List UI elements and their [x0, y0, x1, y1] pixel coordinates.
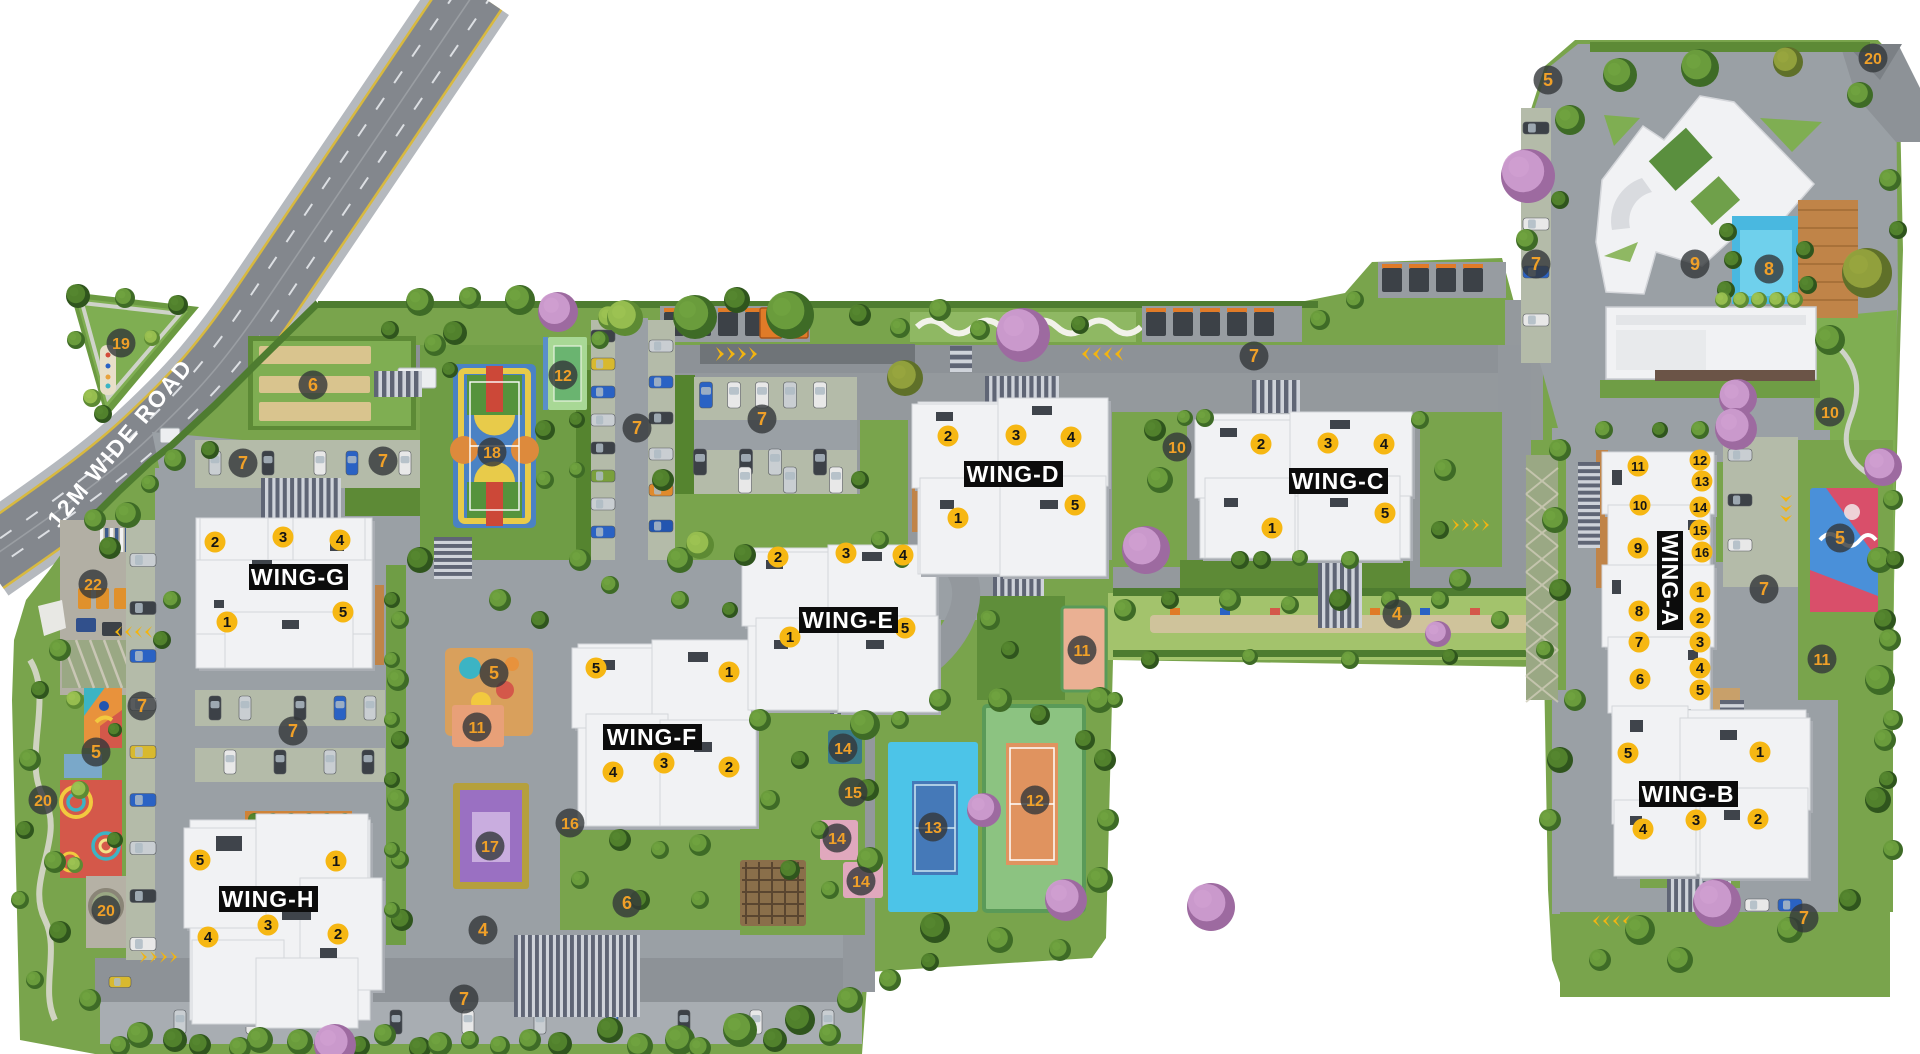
svg-text:17: 17	[481, 839, 499, 856]
svg-text:1: 1	[1696, 584, 1704, 601]
svg-text:14: 14	[834, 741, 852, 758]
svg-text:3: 3	[279, 529, 287, 546]
svg-text:7: 7	[1531, 254, 1541, 274]
svg-text:5: 5	[901, 620, 909, 637]
svg-text:1: 1	[954, 510, 962, 527]
svg-text:4: 4	[1696, 660, 1705, 677]
svg-text:4: 4	[204, 929, 213, 946]
svg-text:4: 4	[1639, 821, 1648, 838]
svg-text:8: 8	[1764, 259, 1774, 279]
svg-text:7: 7	[378, 451, 388, 471]
svg-text:4: 4	[609, 764, 618, 781]
svg-text:11: 11	[1631, 459, 1645, 474]
svg-text:2: 2	[1257, 436, 1265, 453]
svg-text:3: 3	[1324, 435, 1332, 452]
svg-text:3: 3	[1696, 634, 1704, 651]
svg-text:WING-G: WING-G	[251, 564, 345, 590]
svg-text:1: 1	[1268, 520, 1276, 537]
svg-text:6: 6	[308, 375, 318, 395]
svg-text:5: 5	[1696, 682, 1704, 699]
svg-text:7: 7	[757, 409, 767, 429]
svg-text:2: 2	[334, 926, 342, 943]
svg-text:WING-C: WING-C	[1292, 468, 1385, 494]
svg-text:7: 7	[288, 721, 298, 741]
svg-text:3: 3	[842, 545, 850, 562]
svg-text:5: 5	[592, 660, 600, 677]
svg-text:WING-A: WING-A	[1657, 534, 1683, 627]
svg-text:12: 12	[554, 368, 572, 385]
svg-text:3: 3	[1012, 427, 1020, 444]
svg-text:WING-B: WING-B	[1642, 781, 1735, 807]
svg-text:8: 8	[1635, 603, 1643, 620]
svg-text:1: 1	[786, 629, 794, 646]
svg-text:7: 7	[632, 418, 642, 438]
svg-text:5: 5	[489, 663, 499, 683]
svg-text:15: 15	[844, 785, 862, 802]
svg-text:2: 2	[944, 428, 952, 445]
svg-text:11: 11	[469, 720, 486, 737]
svg-text:2: 2	[211, 534, 219, 551]
svg-text:7: 7	[1249, 346, 1259, 366]
svg-text:2: 2	[774, 549, 782, 566]
svg-text:7: 7	[1799, 908, 1809, 928]
svg-text:10: 10	[1633, 498, 1647, 513]
svg-text:15: 15	[1693, 523, 1707, 538]
svg-text:5: 5	[196, 852, 204, 869]
svg-text:14: 14	[828, 831, 846, 848]
svg-text:14: 14	[1693, 500, 1708, 515]
svg-text:1: 1	[1756, 744, 1764, 761]
svg-text:6: 6	[622, 893, 632, 913]
svg-text:4: 4	[336, 532, 345, 549]
svg-text:7: 7	[1759, 579, 1769, 599]
svg-text:14: 14	[852, 874, 870, 891]
svg-text:7: 7	[1635, 634, 1643, 651]
svg-text:19: 19	[112, 336, 130, 353]
svg-text:WING-D: WING-D	[967, 461, 1060, 487]
svg-text:13: 13	[1695, 474, 1709, 489]
svg-text:7: 7	[459, 989, 469, 1009]
svg-text:1: 1	[725, 664, 733, 681]
svg-text:13: 13	[924, 820, 942, 837]
svg-text:1: 1	[332, 853, 340, 870]
svg-text:20: 20	[34, 793, 52, 810]
svg-text:9: 9	[1634, 540, 1642, 557]
svg-text:12: 12	[1026, 793, 1044, 810]
svg-text:22: 22	[84, 577, 102, 594]
svg-text:5: 5	[1381, 505, 1389, 522]
svg-text:9: 9	[1690, 254, 1700, 274]
svg-text:5: 5	[1835, 528, 1845, 548]
svg-text:5: 5	[1624, 745, 1632, 762]
svg-text:11: 11	[1074, 643, 1091, 660]
svg-text:2: 2	[725, 759, 733, 776]
svg-text:WING-H: WING-H	[222, 886, 315, 912]
svg-text:11: 11	[1814, 652, 1831, 669]
svg-text:WING-F: WING-F	[607, 724, 697, 750]
svg-text:5: 5	[1071, 497, 1079, 514]
svg-text:16: 16	[561, 816, 579, 833]
svg-text:7: 7	[238, 453, 248, 473]
svg-text:7: 7	[137, 696, 147, 716]
svg-text:4: 4	[478, 920, 488, 940]
svg-text:4: 4	[1380, 436, 1389, 453]
svg-text:4: 4	[1392, 604, 1402, 624]
svg-text:16: 16	[1695, 545, 1709, 560]
svg-text:4: 4	[899, 547, 908, 564]
svg-text:20: 20	[1864, 51, 1882, 68]
svg-text:20: 20	[97, 903, 115, 920]
svg-text:1: 1	[223, 614, 231, 631]
svg-text:5: 5	[91, 742, 101, 762]
svg-text:2: 2	[1754, 811, 1762, 828]
svg-text:5: 5	[339, 604, 347, 621]
svg-text:2: 2	[1696, 610, 1704, 627]
svg-text:10: 10	[1168, 440, 1186, 457]
svg-text:3: 3	[1692, 812, 1700, 829]
svg-text:6: 6	[1636, 671, 1644, 688]
svg-text:4: 4	[1067, 429, 1076, 446]
svg-text:3: 3	[660, 755, 668, 772]
svg-text:18: 18	[483, 445, 501, 462]
svg-text:3: 3	[264, 917, 272, 934]
svg-text:12: 12	[1693, 453, 1707, 468]
svg-text:10: 10	[1821, 405, 1839, 422]
svg-text:WING-E: WING-E	[802, 607, 894, 633]
svg-text:5: 5	[1543, 70, 1553, 90]
